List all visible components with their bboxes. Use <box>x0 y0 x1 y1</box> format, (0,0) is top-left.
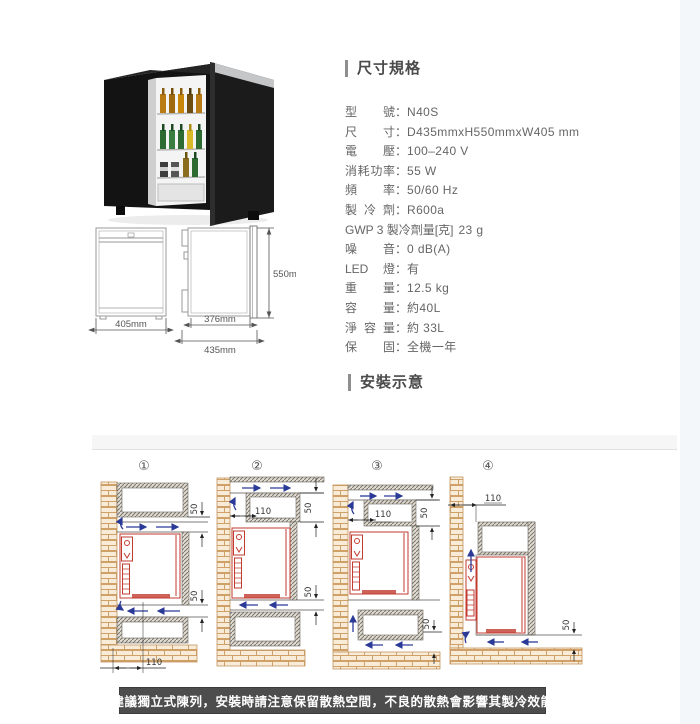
front-width-label: 405mm <box>115 319 147 330</box>
dim-bottom: 50 <box>190 591 200 602</box>
side-view <box>182 226 257 318</box>
spec-label: 型號 <box>345 103 395 123</box>
spec-label: GWP 3 製冷劑量[克] <box>345 221 453 241</box>
spec-row-model: 型號：N40S <box>345 103 607 123</box>
spec-row-noise: 噪音：0 dB(A) <box>345 240 607 260</box>
dim-top: 50 <box>420 508 430 519</box>
spec-row-led: LED燈：有 <box>345 260 607 280</box>
spec-section: 尺寸規格 型號：N40S 尺寸：D435mmxH550mmxW405 mm 電壓… <box>345 60 607 358</box>
spec-label: 容量 <box>345 299 395 319</box>
dim-width: 110 <box>146 658 162 668</box>
spec-value: 50/60 Hz <box>407 183 458 197</box>
spec-value: 23 g <box>458 223 483 237</box>
spec-separator: ： <box>395 321 407 335</box>
dimension-drawing: 405mm 376mm 435mm 550mm <box>86 222 296 362</box>
fridge-outline <box>350 532 408 594</box>
spec-separator: ： <box>395 281 407 295</box>
product-spec-page: 405mm 376mm 435mm 550mm 尺寸規格 型號：N40S 尺寸：… <box>0 0 700 724</box>
spec-value: D435mmxH550mmxW405 mm <box>407 125 579 139</box>
spec-label: 製冷劑 <box>345 201 395 221</box>
install-diagram-4: ④ 110 <box>446 452 586 684</box>
brick-wall <box>450 477 463 648</box>
scroll-gutter <box>680 0 700 724</box>
dim-bottom: 50 <box>422 619 432 630</box>
fridge-base <box>132 594 170 598</box>
spec-row-gwp: GWP 3 製冷劑量[克] 23 g <box>345 221 607 241</box>
brick-wall <box>217 478 230 650</box>
install-heading-text: 安裝示意 <box>360 374 424 391</box>
install-diagram-3: ③ <box>328 452 454 684</box>
interior-side <box>148 78 156 206</box>
spec-value: 55 W <box>407 164 437 178</box>
spec-separator: ： <box>395 203 407 217</box>
brick-wall <box>333 485 348 652</box>
dim-bottom: 50 <box>562 620 572 631</box>
spec-separator: ： <box>395 340 407 354</box>
diagram-number: ② <box>251 459 263 474</box>
height-label: 550mm <box>273 269 296 280</box>
spec-value: 約 33L <box>407 321 444 335</box>
separator-band <box>92 435 677 450</box>
spec-label: 頻率 <box>345 181 395 201</box>
spec-label: 淨容量 <box>345 319 395 339</box>
fridge-outline <box>466 557 525 633</box>
spec-value: N40S <box>407 105 439 119</box>
spec-label: 重量 <box>345 279 395 299</box>
install-note-banner: 建議獨立式陳列，安裝時請注意保留散熱空間，不良的散熱會影響其製冷效能 <box>119 687 546 714</box>
spec-separator: ： <box>395 242 407 256</box>
total-depth-label: 435mm <box>204 345 236 356</box>
spec-label: 保固 <box>345 338 395 358</box>
dim-vent: 110 <box>255 507 271 517</box>
foot-left <box>116 206 125 215</box>
spec-row-net-capacity: 淨容量：約 33L <box>345 319 607 339</box>
spec-value: 全機一年 <box>407 340 457 354</box>
spec-value: 100–240 V <box>407 144 469 158</box>
spec-row-frequency: 頻率：50/60 Hz <box>345 181 607 201</box>
brick-floor <box>450 648 582 664</box>
spec-value: 0 dB(A) <box>407 242 450 256</box>
spec-row-warranty: 保固：全機一年 <box>345 338 607 358</box>
fridge-base <box>362 590 396 594</box>
section-heading-install: 安裝示意 <box>348 374 424 391</box>
spec-row-refrigerant: 製冷劑：R600a <box>345 201 607 221</box>
brick-wall <box>101 482 117 645</box>
spec-row-size: 尺寸：D435mmxH550mmxW405 mm <box>345 123 607 143</box>
spec-separator: ： <box>395 183 407 197</box>
diagram-number: ④ <box>482 459 494 474</box>
fridge-base <box>244 594 280 598</box>
spec-list: 型號：N40S 尺寸：D435mmxH550mmxW405 mm 電壓：100–… <box>345 103 607 358</box>
spec-label: 尺寸 <box>345 123 395 143</box>
foot-right <box>248 211 259 220</box>
install-diagram-2: ② <box>204 452 330 684</box>
spec-separator: ： <box>395 144 407 158</box>
spec-value: 有 <box>407 262 419 276</box>
spec-row-voltage: 電壓：100–240 V <box>345 142 607 162</box>
spec-heading-text: 尺寸規格 <box>357 60 421 77</box>
spec-separator: ： <box>395 262 407 276</box>
spec-separator: ： <box>395 164 407 178</box>
front-view <box>96 228 166 319</box>
brick-floor <box>217 650 305 666</box>
fridge-door <box>210 62 274 226</box>
spec-label: 噪音 <box>345 240 395 260</box>
spec-row-power: 消耗功率：55 W <box>345 162 607 182</box>
fridge-outline <box>120 534 180 598</box>
section-heading-specs: 尺寸規格 <box>345 60 607 77</box>
dim-top: 50 <box>190 504 200 515</box>
brick-floor <box>333 652 440 669</box>
diagram-number: ① <box>138 459 150 474</box>
spec-row-capacity: 容量：約40L <box>345 299 607 319</box>
spec-label: LED燈 <box>345 260 395 280</box>
spec-label: 電壓 <box>345 142 395 162</box>
spec-value: 約40L <box>407 301 441 315</box>
dim-gap: 110 <box>485 494 501 504</box>
dim-vent: 110 <box>375 510 391 520</box>
fridge-base <box>486 629 516 633</box>
spec-separator: ： <box>395 301 407 315</box>
dim-bottom: 50 <box>304 587 314 598</box>
spec-separator: ： <box>395 125 407 139</box>
body-depth-label: 376mm <box>204 314 236 325</box>
diagram-number: ③ <box>371 459 383 474</box>
spec-row-weight: 重量：12.5 kg <box>345 279 607 299</box>
dim-top: 50 <box>304 503 314 514</box>
spec-value: R600a <box>407 203 444 217</box>
product-photo <box>98 56 280 228</box>
spec-label: 消耗功率 <box>345 162 395 182</box>
crisper-drawer <box>158 184 204 201</box>
spec-separator: ： <box>395 105 407 119</box>
install-note-text: 建議獨立式陳列，安裝時請注意保留散熱空間，不良的散熱會影響其製冷效能 <box>112 691 554 710</box>
fridge-outline <box>232 528 290 598</box>
door-edge <box>210 62 215 226</box>
spec-value: 12.5 kg <box>407 281 449 295</box>
